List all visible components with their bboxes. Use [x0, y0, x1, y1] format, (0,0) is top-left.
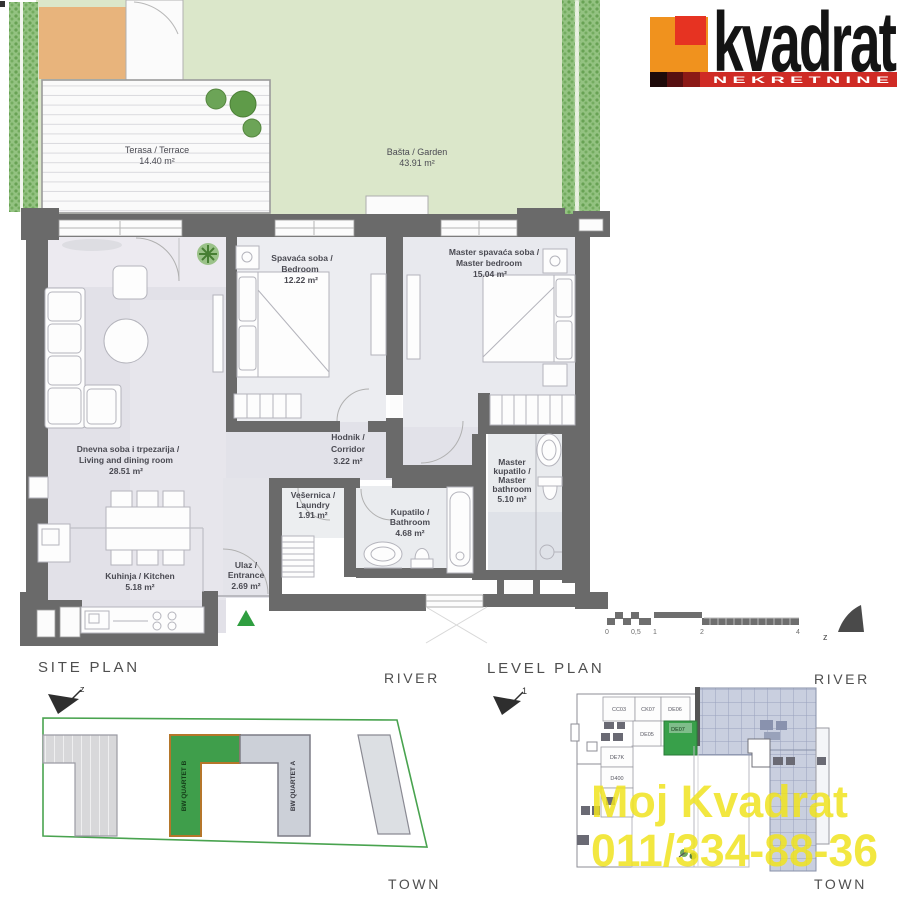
svg-text:Laundry: Laundry: [296, 500, 330, 510]
svg-text:TOWN: TOWN: [388, 876, 441, 892]
svg-text:Living and dining room: Living and dining room: [79, 455, 173, 465]
svg-text:DE7K: DE7K: [610, 755, 625, 761]
svg-text:BW QUARTET B: BW QUARTET B: [181, 760, 188, 811]
svg-text:1.91 m²: 1.91 m²: [298, 510, 327, 520]
svg-text:Vešernica /: Vešernica /: [291, 490, 336, 500]
svg-text:Ulaz /: Ulaz /: [235, 560, 258, 570]
svg-text:Kuhinja / Kitchen: Kuhinja / Kitchen: [105, 571, 174, 581]
svg-text:Hodnik /: Hodnik /: [331, 432, 365, 442]
svg-text:1: 1: [522, 686, 527, 696]
svg-text:z: z: [80, 684, 85, 694]
svg-text:LEVEL PLAN: LEVEL PLAN: [487, 660, 605, 677]
svg-text:DE05: DE05: [640, 732, 654, 738]
svg-text:5.18 m²: 5.18 m²: [125, 582, 154, 592]
svg-text:4.68 m²: 4.68 m²: [395, 528, 424, 538]
svg-text:2: 2: [700, 629, 704, 636]
svg-text:SITE PLAN: SITE PLAN: [38, 659, 140, 676]
svg-text:28.51 m²: 28.51 m²: [109, 466, 143, 476]
svg-text:Corridor: Corridor: [331, 444, 366, 454]
svg-text:1: 1: [653, 629, 657, 636]
svg-text:DE06: DE06: [668, 707, 682, 713]
svg-text:12.22 m²: 12.22 m²: [284, 275, 318, 285]
svg-text:Master bedroom: Master bedroom: [456, 258, 523, 268]
svg-text:Dnevna soba i trpezarija /: Dnevna soba i trpezarija /: [77, 444, 180, 454]
svg-text:Moj Kvadrat: Moj Kvadrat: [591, 776, 848, 827]
svg-text:bathroom: bathroom: [492, 484, 532, 494]
svg-text:Spavaća soba /: Spavaća soba /: [271, 253, 333, 263]
svg-text:0: 0: [605, 629, 609, 636]
svg-text:0,5: 0,5: [631, 629, 641, 636]
svg-text:2.69 m²: 2.69 m²: [231, 581, 260, 591]
svg-text:N E K R E T N I N E: N E K R E T N I N E: [713, 75, 889, 86]
svg-text:15.04 m²: 15.04 m²: [473, 269, 507, 279]
svg-text:43.91 m²: 43.91 m²: [399, 158, 435, 168]
svg-text:CC03: CC03: [612, 707, 626, 713]
svg-text:14.40 m²: 14.40 m²: [139, 156, 175, 166]
svg-text:CK07: CK07: [641, 707, 655, 713]
svg-text:Master spavaća soba /: Master spavaća soba /: [449, 247, 540, 257]
svg-text:4: 4: [796, 629, 800, 636]
svg-text:5.10 m²: 5.10 m²: [497, 494, 526, 504]
svg-text:DE07: DE07: [671, 727, 685, 733]
svg-text:Kupatilo /: Kupatilo /: [391, 507, 430, 517]
svg-text:Bathroom: Bathroom: [390, 517, 431, 527]
svg-text:Bašta / Garden: Bašta / Garden: [387, 147, 448, 157]
svg-text:Terasa / Terrace: Terasa / Terrace: [125, 145, 189, 155]
svg-text:RIVER: RIVER: [384, 670, 440, 686]
svg-text:3.22 m²: 3.22 m²: [333, 456, 362, 466]
svg-text:Entrance: Entrance: [228, 570, 265, 580]
svg-text:011/334-88-36: 011/334-88-36: [591, 825, 878, 876]
svg-text:z: z: [823, 632, 828, 642]
svg-text:TOWN: TOWN: [814, 876, 867, 892]
svg-text:BW QUARTET A: BW QUARTET A: [290, 761, 297, 812]
svg-text:RIVER: RIVER: [814, 671, 870, 687]
svg-text:Bedroom: Bedroom: [281, 264, 319, 274]
